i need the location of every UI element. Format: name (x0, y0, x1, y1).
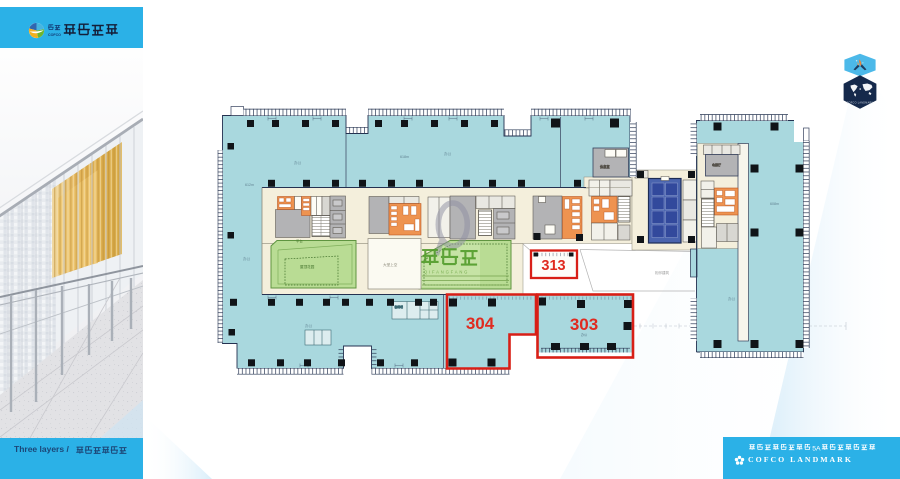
svg-text:303: 303 (570, 315, 598, 334)
svg-text:咖啡吧: 咖啡吧 (395, 305, 404, 309)
svg-text:QIFANGFANG: QIFANGFANG (424, 270, 469, 275)
svg-text:办公: 办公 (581, 332, 588, 337)
svg-text:相邻建筑: 相邻建筑 (655, 270, 669, 275)
svg-text:屋顶花园: 屋顶花园 (300, 264, 315, 269)
svg-text:办公: 办公 (294, 160, 302, 165)
svg-text:大堂上空: 大堂上空 (383, 262, 398, 267)
svg-text:304: 304 (466, 314, 495, 333)
svg-text:办公: 办公 (444, 151, 452, 156)
svg-text:办公: 办公 (243, 256, 251, 261)
svg-text:电梯厅: 电梯厅 (712, 162, 721, 167)
svg-text:618m: 618m (400, 155, 409, 159)
svg-text:612m: 612m (245, 183, 254, 187)
svg-text:办公: 办公 (728, 296, 736, 301)
svg-text:休息室: 休息室 (600, 164, 610, 169)
svg-text:313: 313 (541, 258, 565, 274)
svg-text:办公: 办公 (305, 323, 313, 328)
svg-text:608m: 608m (770, 202, 779, 206)
svg-text:平台: 平台 (296, 239, 303, 244)
